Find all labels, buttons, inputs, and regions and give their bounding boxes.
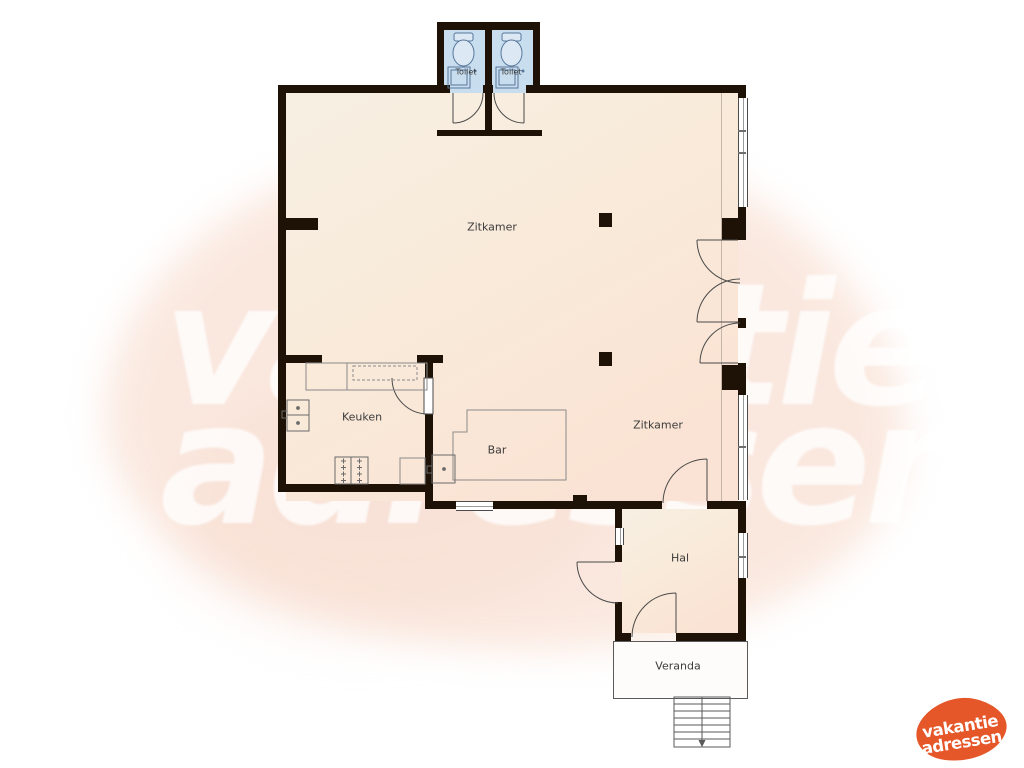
hal-side-door-arc: [577, 562, 618, 603]
terrace-door-arc: [700, 323, 740, 363]
vakantieadressen-logo: vakantie adressen: [908, 694, 1016, 766]
french-door-leaves: [697, 240, 738, 322]
kitchen-sink-icon: [282, 400, 309, 431]
plan-linework: [0, 0, 1024, 768]
front-door-arc: [632, 593, 676, 637]
room-label-keuken: Keuken: [342, 411, 382, 424]
kitchen-counter: [306, 363, 427, 390]
kitchen-door-leaf: [424, 378, 433, 414]
toilet-bowl-right-icon: [501, 40, 522, 66]
toilet-right-door-arc: [494, 93, 524, 123]
hal-inner-door-arc: [663, 459, 707, 503]
toilet-left-door-arc: [453, 93, 483, 123]
kitchen-upper-cabinet: [353, 366, 417, 380]
toilet-fixtures: [448, 33, 524, 88]
floorplan-canvas: vakantie adressen: [0, 0, 1024, 768]
stove-icon: [335, 457, 368, 484]
room-label-bar: Bar: [488, 444, 507, 457]
room-label-hal: Hal: [671, 552, 689, 565]
room-label-zitkamer-main: Zitkamer: [467, 221, 517, 234]
room-label-veranda: Veranda: [655, 660, 700, 673]
kitchen-door-arc: [392, 378, 428, 414]
bar-sink-icon: [427, 455, 455, 483]
room-label-toilet-right: Toilet: [501, 68, 522, 77]
bar-counter: [453, 410, 566, 480]
counters: [306, 363, 566, 484]
room-label-zitkamer-second: Zitkamer: [633, 419, 683, 432]
toilet-bowl-left-icon: [453, 40, 474, 66]
room-label-toilet-left: Toilet: [456, 68, 477, 77]
french-door-arc-top: [697, 240, 740, 283]
stairs-icon: [674, 697, 730, 747]
french-door-arc-bottom: [697, 279, 740, 322]
kitchen-counter-bottom: [400, 458, 425, 484]
